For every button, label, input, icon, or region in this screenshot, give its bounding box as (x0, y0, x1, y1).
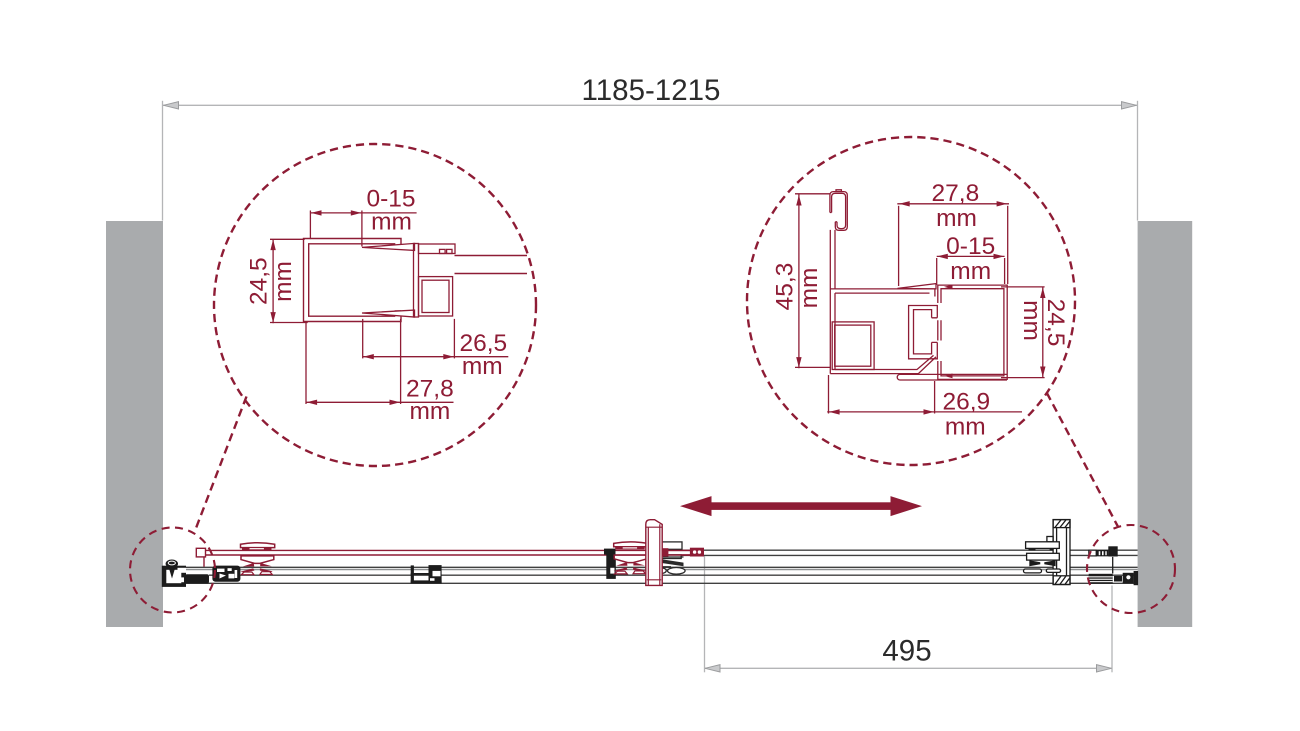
svg-text:0-15: 0-15 (946, 233, 995, 260)
svg-text:mm: mm (1018, 300, 1045, 341)
svg-text:mm: mm (409, 398, 450, 425)
svg-text:26,9: 26,9 (942, 389, 990, 416)
svg-text:mm: mm (936, 205, 977, 232)
svg-text:mm: mm (371, 209, 412, 236)
svg-text:27,8: 27,8 (932, 180, 980, 207)
svg-text:mm: mm (945, 413, 986, 440)
svg-text:24,5: 24,5 (246, 257, 273, 305)
svg-text:mm: mm (950, 258, 991, 285)
svg-text:mm: mm (462, 353, 503, 380)
svg-text:mm: mm (270, 261, 297, 302)
svg-text:45,3: 45,3 (772, 263, 799, 311)
svg-text:1185-1215: 1185-1215 (582, 74, 721, 107)
svg-text:mm: mm (796, 268, 823, 309)
svg-text:495: 495 (882, 635, 931, 668)
